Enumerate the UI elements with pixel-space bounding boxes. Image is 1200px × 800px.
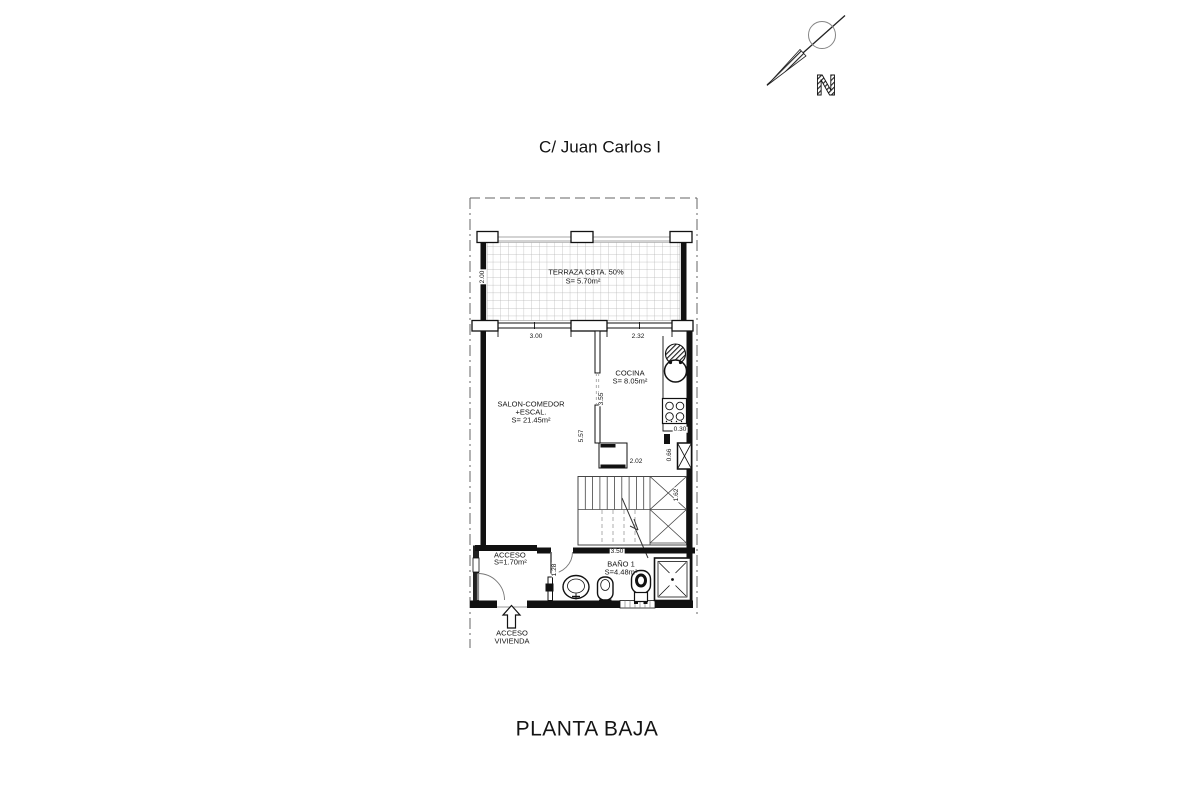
dim-counter-depth: 0.30 [673,426,688,433]
kitchen-sink-icon [665,360,687,382]
floor-plan-page: N [0,0,1200,800]
terraza-name-label: TERRAZA CBTA. 50% [548,268,623,276]
dim-cocina-depth: 3.55 [599,392,606,407]
entrance-arrow-icon [503,606,520,629]
dim-cocina-window: 2.32 [631,334,646,341]
dim-bano-width: 3.50 [610,548,625,555]
window-wall [472,321,693,338]
dim-terraza-depth: 2.00 [480,270,487,285]
pillar [670,232,692,243]
cocina-area-label: S= 8.05m² [613,377,648,385]
divider-wall [595,331,600,443]
pillar [672,321,693,332]
plan-title: PLANTA BAJA [516,719,659,740]
street-label: C/ Juan Carlos I [539,139,661,156]
bano-area-label: S=4.48m² [605,568,638,576]
entry-door [478,574,505,601]
salon-area-label: S= 21.45m² [512,416,551,424]
entrance-label-line2: VIVIENDA [494,637,529,645]
acceso-area-label: S=1.70m² [494,558,527,566]
bathroom-sink-icon [563,576,589,600]
dim-salon-depth: 5.57 [579,429,586,444]
north-letter: N [816,70,837,102]
kitchen-fittings [599,336,692,469]
stairs [578,477,687,559]
dim-shaft-height: 0.66 [667,448,674,463]
stove-icon [663,399,687,424]
dim-stair-width: 1.62 [673,488,680,503]
shaft-icon [678,443,692,469]
pillar [571,321,607,332]
pillar [571,232,593,243]
dim-cocina-width: 2.02 [629,459,644,466]
dim-salon-window: 3.00 [529,334,544,341]
dim-corridor-width: 1.28 [552,563,559,578]
washer-icon [599,443,627,468]
north-arrow-icon: N [767,16,845,103]
bidet-icon [598,577,614,603]
pillar [477,232,498,243]
shower-icon [655,558,691,601]
pillar [472,321,498,332]
terraza-area-label: S= 5.70m² [566,277,601,285]
